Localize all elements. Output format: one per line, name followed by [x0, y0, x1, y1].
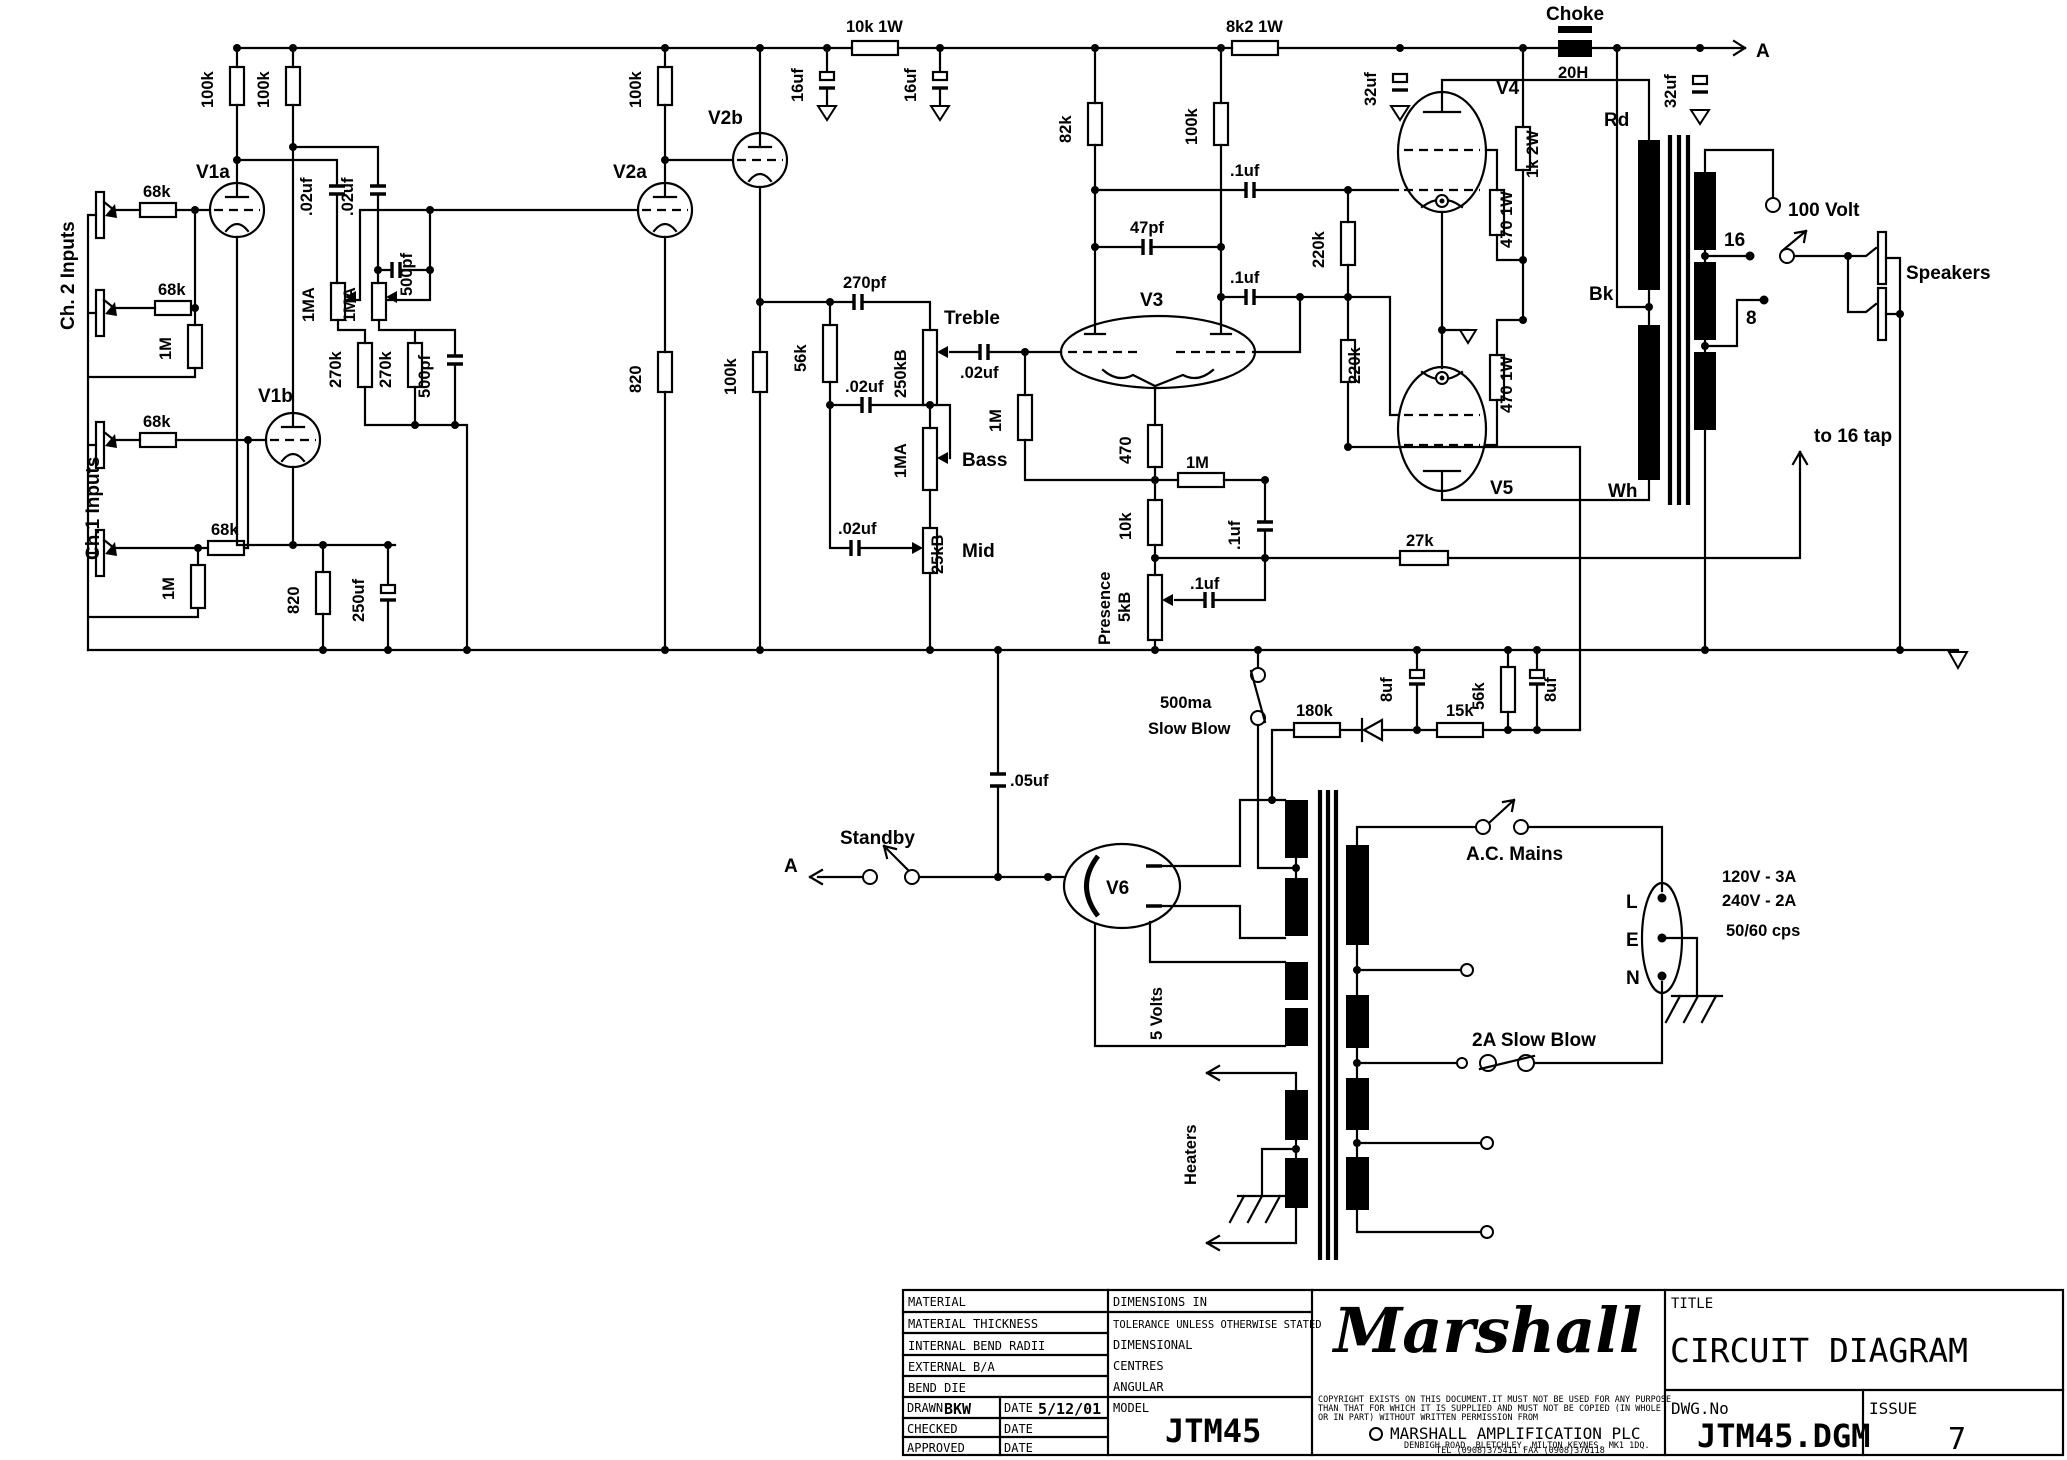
ot-secondary-2: [1694, 262, 1716, 340]
label-1k-2w: 1k 2W: [1524, 130, 1542, 178]
v4-cathode-dot: [1440, 199, 1445, 204]
label-220k-b: 220k: [1346, 346, 1364, 384]
resistor-1m-ch2: [188, 325, 202, 368]
ot-secondary-3: [1694, 352, 1716, 430]
jack-contact-arrow-3: [105, 434, 117, 448]
label-32uf-a: 32uf: [1362, 72, 1380, 106]
resistor-100k-v2b: [753, 352, 767, 392]
tb-material-thickness: MATERIAL THICKNESS: [908, 1317, 1038, 1331]
label-heaters: Heaters: [1182, 1124, 1200, 1185]
label-50-60: 50/60 cps: [1726, 922, 1800, 940]
label-470-1w-b: 470 1W: [1498, 356, 1516, 413]
pot-presence: [1148, 575, 1162, 640]
heater-winding-a: [1285, 1090, 1308, 1140]
v5-cathode-dot: [1440, 376, 1445, 381]
wiper-arrow-treble: [937, 346, 948, 358]
label-treble: Treble: [944, 308, 1000, 329]
label-02uf-mid: .02uf: [838, 520, 877, 538]
label-1m-ch1: 1M: [160, 577, 178, 600]
label-speakers: Speakers: [1906, 263, 1991, 284]
label-a-bottom: A: [784, 856, 798, 877]
resistor-27k-nfb: [1400, 551, 1448, 565]
label-bk: Bk: [1589, 284, 1614, 305]
tb-centres: CENTRES: [1113, 1359, 1164, 1373]
tb-checked: CHECKED: [907, 1422, 958, 1436]
label-v1a: V1a: [196, 162, 230, 183]
label-a-top: A: [1756, 41, 1770, 62]
label-v3: V3: [1140, 290, 1163, 311]
primary-winding-2: [1346, 995, 1369, 1048]
label-500ma: 500ma: [1160, 694, 1212, 712]
label-270k-a: 270k: [327, 350, 345, 388]
trademark-icon: [1370, 1428, 1382, 1440]
primary-winding-1: [1346, 845, 1369, 945]
resistor-56k-tone: [823, 325, 837, 382]
label-2a-slow-blow: 2A Slow Blow: [1472, 1030, 1596, 1051]
tb-drawn-date: 5/12/01: [1038, 1400, 1101, 1418]
resistor-68k-3: [140, 433, 176, 447]
pot-treble: [923, 330, 937, 405]
speaker-jack-2: [1878, 288, 1886, 340]
label-100k-v2b: 100k: [722, 357, 740, 395]
label-rd: Rd: [1604, 110, 1629, 131]
ht-winding-a: [1285, 800, 1308, 858]
label-500pf-a: 500pf: [398, 252, 416, 296]
label-1uf-presence: .1uf: [1190, 575, 1220, 593]
label-240v: 240V - 2A: [1722, 892, 1796, 910]
resistor-100k-v1a: [230, 67, 244, 105]
label-68k-2: 68k: [158, 281, 186, 299]
resistors: [140, 41, 1530, 737]
tb-model-label: MODEL: [1113, 1401, 1149, 1415]
tb-dimensions-in: DIMENSIONS IN: [1113, 1295, 1207, 1309]
input-jack-ch2-1: [96, 192, 104, 238]
label-ch2-inputs: Ch. 2 Inputs: [58, 221, 79, 330]
label-100k-v1b: 100k: [255, 70, 273, 108]
label-16uf-b: 16uf: [902, 68, 920, 102]
resistor-100k-pi: [1214, 103, 1228, 145]
wiper-arrow-bass: [937, 452, 948, 464]
resistor-68k-2: [155, 301, 191, 315]
label-16-tap: 16: [1724, 230, 1745, 251]
label-10k-tail: 10k: [1117, 512, 1135, 540]
label-1uf-a: .1uf: [1230, 162, 1260, 180]
label-02uf-slope: .02uf: [845, 378, 884, 396]
tb-tel: TEL (0908)375411 FAX (0908)376118: [1436, 1446, 1605, 1456]
label-16uf-a: 16uf: [789, 68, 807, 102]
label-470-tail: 470: [1117, 436, 1135, 464]
label-8k2-1w: 8k2 1W: [1226, 18, 1283, 36]
resistor-68k-4: [208, 541, 244, 555]
label-02uf-b: .02uf: [339, 177, 357, 216]
label-56k-bias: 56k: [1470, 682, 1488, 710]
tb-tolerance: TOLERANCE UNLESS OTHERWISE STATED: [1113, 1319, 1322, 1331]
title-block: MATERIAL MATERIAL THICKNESS INTERNAL BEN…: [903, 1290, 2063, 1457]
tb-date-1: DATE: [1004, 1401, 1033, 1415]
resistor-10k-tail: [1148, 500, 1162, 545]
label-820-v2a: 820: [627, 365, 645, 393]
schematic-page: Ch. 2 Inputs Ch.1 Inputs 68k 68k 68k 68k…: [0, 0, 2067, 1460]
label-v4: V4: [1496, 78, 1520, 99]
label-25kb: 25kB: [929, 534, 947, 574]
label-pin-e: E: [1626, 930, 1639, 951]
cap-32uf-b: [1692, 76, 1708, 92]
ot-primary-top: [1638, 140, 1660, 290]
label-presence: Presence: [1096, 572, 1114, 645]
label-slow-blow: Slow Blow: [1148, 720, 1231, 738]
tb-material: MATERIAL: [908, 1295, 966, 1309]
fuse-500ma: [1251, 668, 1265, 725]
tb-drawn: DRAWN: [907, 1401, 943, 1415]
label-68k-1: 68k: [143, 183, 171, 201]
label-82k: 82k: [1057, 115, 1075, 143]
resistor-1m-ch1: [191, 565, 205, 608]
label-100-volt: 100 Volt: [1788, 200, 1860, 221]
ground-icon-16uf-a: [818, 106, 836, 120]
label-1ma-bass: 1MA: [892, 443, 910, 478]
label-68k-4: 68k: [211, 521, 239, 539]
wiper-arrow-mid: [912, 542, 923, 554]
resistor-8k2-1w: [1232, 41, 1278, 55]
5v-winding-b: [1285, 1008, 1308, 1046]
impedance-selector-switch: [1746, 198, 1795, 305]
label-ch1-inputs: Ch.1 Inputs: [83, 457, 104, 560]
marshall-logo: Marshall: [1332, 1294, 1643, 1367]
label-02uf-out: .02uf: [960, 364, 999, 382]
label-180k: 180k: [1296, 702, 1334, 720]
label-100k-v1a: 100k: [199, 70, 217, 108]
jtm45-schematic: Ch. 2 Inputs Ch.1 Inputs 68k 68k 68k 68k…: [0, 0, 2067, 1460]
wire-mains-section: [810, 650, 1722, 1250]
label-8uf-b: 8uf: [1542, 677, 1560, 702]
tb-date-2: DATE: [1004, 1422, 1033, 1436]
label-v6: V6: [1106, 878, 1129, 899]
ot-core: [1670, 135, 1688, 505]
label-120v: 120V - 3A: [1722, 868, 1796, 886]
label-standby: Standby: [840, 828, 915, 849]
jack-contact-arrow-2: [105, 302, 117, 316]
choke-core-icon: [1558, 26, 1592, 33]
tb-date-3: DATE: [1004, 1441, 1033, 1455]
label-5-volts: 5 Volts: [1148, 987, 1166, 1040]
label-choke: Choke: [1546, 4, 1604, 25]
jack-contact-arrow-4: [105, 542, 117, 556]
jack-contact-arrow-1: [105, 204, 117, 218]
primary-winding-3: [1346, 1078, 1369, 1130]
resistor-270k-a: [358, 343, 372, 387]
cap-16uf-b: [932, 72, 948, 88]
cap-8uf-a: [1409, 670, 1425, 684]
tb-internal-bend: INTERNAL BEND RADII: [908, 1339, 1045, 1353]
wiper-arrow-vol-b: [386, 291, 397, 303]
tb-title-label: TITLE: [1671, 1296, 1713, 1312]
ground-icon-cathodes: [1460, 330, 1476, 343]
cap-16uf-a: [819, 72, 835, 88]
resistor-100k-v2a: [658, 67, 672, 105]
cap-tone: [851, 294, 988, 556]
ground-icon-16uf-b: [931, 106, 949, 120]
label-27k: 27k: [1406, 532, 1434, 550]
resistor-82k: [1088, 103, 1102, 145]
tb-model: JTM45: [1165, 1412, 1261, 1450]
resistor-470-tail: [1148, 425, 1162, 467]
label-470-1w-a: 470 1W: [1498, 191, 1516, 248]
label-1uf-tail: .1uf: [1226, 520, 1244, 550]
tb-dwg-label: DWG.No: [1671, 1399, 1729, 1418]
cap-250uf: [380, 585, 396, 600]
label-v5: V5: [1490, 478, 1514, 499]
tb-bend-die: BEND DIE: [908, 1381, 966, 1395]
choke-winding-icon: [1558, 40, 1592, 57]
tb-approved: APPROVED: [907, 1441, 965, 1455]
resistor-1m-tail: [1178, 473, 1224, 487]
label-1m-ch2: 1M: [157, 337, 175, 360]
resistor-68k-1: [140, 203, 176, 217]
label-68k-3: 68k: [143, 413, 171, 431]
tb-angular: ANGULAR: [1113, 1380, 1164, 1394]
label-v1b: V1b: [258, 386, 293, 407]
label-1m-grid: 1M: [987, 409, 1005, 432]
resistor-180k: [1294, 723, 1340, 737]
label-100k-pi: 100k: [1183, 107, 1201, 145]
tb-copyright-3: OR IN PART) WITHOUT WRITTEN PERMISSION F…: [1318, 1413, 1538, 1423]
ht-winding-b: [1285, 878, 1308, 936]
label-to-16-tap: to 16 tap: [1814, 426, 1892, 447]
label-8-tap: 8: [1746, 308, 1757, 329]
wire-b-plus-rail: [237, 41, 1745, 55]
tb-issue: 7: [1948, 1422, 1966, 1457]
resistor-820-v2a: [658, 352, 672, 392]
mains-transformer-core: [1320, 790, 1336, 1260]
label-bass: Bass: [962, 450, 1007, 471]
tb-drawn-by: BKW: [944, 1400, 972, 1418]
tb-title: CIRCUIT DIAGRAM: [1670, 1331, 1968, 1370]
resistor-1m-grid: [1018, 395, 1032, 440]
label-500pf-b: 500pf: [416, 354, 434, 398]
label-wh: Wh: [1608, 481, 1638, 502]
label-mid: Mid: [962, 541, 995, 562]
cap-02uf-couple: [329, 186, 386, 194]
label-20h: 20H: [1558, 64, 1588, 82]
label-1uf-b: .1uf: [1230, 269, 1260, 287]
resistor-220k-a: [1341, 222, 1355, 265]
label-1ma-b: 1MA: [341, 287, 359, 322]
label-pin-l: L: [1626, 892, 1638, 913]
resistor-56k-bias: [1501, 667, 1515, 712]
primary-winding-4: [1346, 1157, 1369, 1210]
label-100k-v2a: 100k: [627, 70, 645, 108]
pot-bass: [923, 428, 937, 490]
wire-preamp: [88, 48, 940, 650]
tb-issue-label: ISSUE: [1869, 1399, 1917, 1418]
wiper-arrow-presence: [1162, 594, 1173, 606]
fuse-2a: [1457, 1055, 1534, 1071]
label-220k-a: 220k: [1310, 230, 1328, 268]
speaker-jack-1: [1878, 232, 1886, 284]
5v-winding-a: [1285, 962, 1308, 1000]
input-jack-ch2-2: [96, 290, 104, 336]
heater-winding-b: [1285, 1158, 1308, 1208]
resistor-820-v1: [316, 572, 330, 614]
resistor-10k-1w: [852, 41, 898, 55]
label-10k-1w: 10k 1W: [846, 18, 903, 36]
label-02uf-a: .02uf: [298, 177, 316, 216]
resistor-100k-v1b: [286, 67, 300, 105]
label-32uf-b: 32uf: [1662, 74, 1680, 108]
tb-dimensional: DIMENSIONAL: [1113, 1338, 1192, 1352]
label-v2b: V2b: [708, 108, 743, 129]
cap-32uf-a: [1392, 74, 1408, 90]
label-56k-tone: 56k: [792, 344, 810, 372]
standby-switch: [863, 870, 919, 884]
label-820-v1: 820: [285, 586, 303, 614]
label-1ma-a: 1MA: [300, 287, 318, 322]
ac-mains-switch: [1476, 820, 1528, 834]
label-47pf: 47pf: [1130, 219, 1164, 237]
bias-diode: [1362, 719, 1382, 741]
label-250uf: 250uf: [350, 578, 368, 622]
label-8uf-a: 8uf: [1378, 677, 1396, 702]
tb-external-ba: EXTERNAL B/A: [908, 1360, 995, 1374]
label-5kb: 5kB: [1116, 592, 1134, 622]
ot-primary-bottom: [1638, 325, 1660, 480]
resistor-15k: [1437, 723, 1483, 737]
ot-secondary-1: [1694, 172, 1716, 250]
label-05uf: .05uf: [1010, 772, 1049, 790]
primary-tap-terminals: [1461, 964, 1493, 1238]
label-270pf: 270pf: [843, 274, 887, 292]
ground-icon-rail-end: [1949, 652, 1967, 668]
label-ac-mains: A.C. Mains: [1466, 844, 1563, 865]
tube-internals: [214, 92, 1480, 916]
pot-volume-b: [372, 283, 386, 320]
label-250kb: 250kB: [892, 349, 910, 398]
tb-dwg: JTM45.DGM: [1697, 1417, 1870, 1455]
label-v2a: V2a: [613, 162, 647, 183]
label-pin-n: N: [1626, 968, 1640, 989]
label-270k-b: 270k: [377, 350, 395, 388]
label-1m-tail: 1M: [1186, 454, 1209, 472]
ground-icon-32uf-b: [1691, 110, 1709, 124]
